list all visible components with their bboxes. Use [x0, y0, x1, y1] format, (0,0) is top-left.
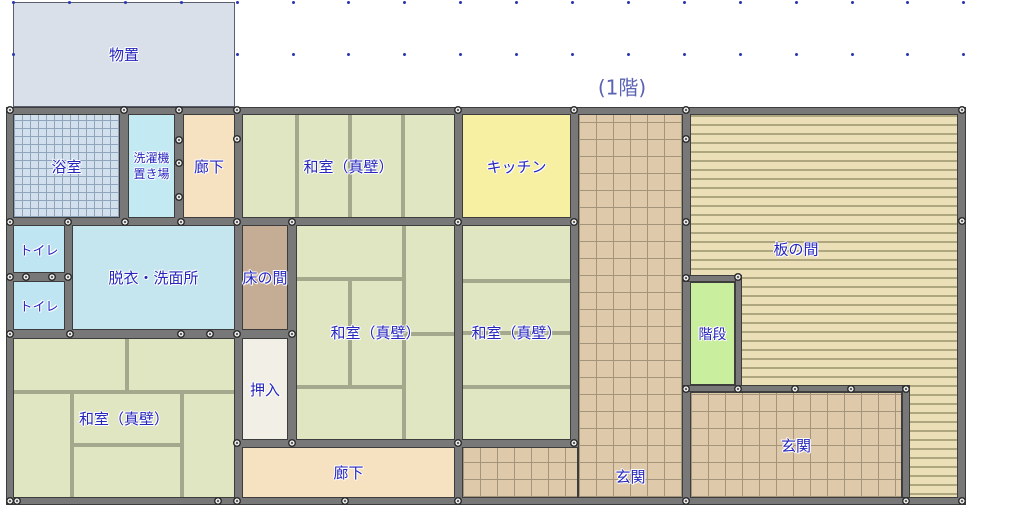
tatami-divider	[463, 279, 570, 283]
wall-joint-marker	[175, 159, 183, 167]
wall-joint-marker	[206, 330, 214, 338]
grid-dot	[515, 1, 518, 4]
wall-joint-marker	[120, 106, 128, 114]
wall-joint-marker	[958, 497, 966, 505]
floor-label: (1階)	[598, 72, 646, 101]
room-corridor-bottom[interactable]: 廊下	[242, 447, 455, 498]
grid-dot	[795, 53, 798, 56]
grid-dot	[962, 53, 965, 56]
tatami-divider	[14, 390, 234, 394]
wall-joint-marker	[682, 497, 690, 505]
grid-dot	[459, 53, 462, 56]
grid-dot	[459, 1, 462, 4]
grid-dot	[739, 1, 742, 4]
room-washitsu-middle-label: 和室（真壁）	[330, 322, 420, 343]
room-washroom[interactable]: 脱衣・洗面所	[72, 225, 235, 330]
wall-joint-marker	[958, 106, 966, 114]
wall-joint-marker	[682, 106, 690, 114]
room-toilet-upper-label: トイレ	[19, 240, 58, 259]
grid-dot	[851, 53, 854, 56]
wall-joint-marker	[791, 385, 799, 393]
wall-joint-marker	[682, 274, 690, 282]
wall-joint-marker	[6, 330, 14, 338]
wall-segment	[902, 385, 910, 498]
floor-plan-canvas: 物置 浴室 洗濯機 置き場 廊下 和室（真壁） キッチン トイレ トイレ 脱衣・…	[0, 0, 1014, 519]
wall-joint-marker	[734, 273, 742, 281]
grid-dot	[515, 53, 518, 56]
room-toilet-lower[interactable]: トイレ	[13, 281, 65, 330]
room-corridor-top-label: 廊下	[194, 156, 224, 177]
grid-dot	[347, 1, 350, 4]
room-washroom-label: 脱衣・洗面所	[108, 267, 198, 288]
room-bath-label: 浴室	[51, 156, 81, 177]
wall-joint-marker	[175, 106, 183, 114]
wall-joint-marker	[847, 385, 855, 393]
room-genkan-hall[interactable]: 玄関	[578, 114, 683, 498]
grid-dot	[683, 53, 686, 56]
wall-joint-marker	[454, 497, 462, 505]
room-storage-label: 物置	[109, 44, 139, 65]
tatami-divider	[401, 115, 405, 217]
grid-dot	[236, 53, 239, 56]
room-stairs[interactable]: 階段	[690, 282, 735, 385]
room-kitchen[interactable]: キッチン	[462, 114, 571, 218]
tatami-divider	[295, 115, 299, 217]
grid-dot	[627, 53, 630, 56]
wall-joint-marker	[22, 273, 30, 281]
room-itanoma-label: 板の間	[773, 239, 818, 260]
grid-dot	[292, 1, 295, 4]
grid-dot	[962, 1, 965, 4]
wall-joint-marker	[233, 135, 241, 143]
room-washitsu-right-label: 和室（真壁）	[471, 322, 561, 343]
wall-joint-marker	[570, 218, 578, 226]
wall-joint-marker	[6, 106, 14, 114]
wall-joint-marker	[121, 218, 129, 226]
room-genkan-entrance-label: 玄関	[781, 435, 811, 456]
tatami-divider	[74, 443, 180, 447]
grid-dot	[906, 53, 909, 56]
wall-joint-marker	[454, 106, 462, 114]
wall-joint-marker	[175, 193, 183, 201]
wall-joint-marker	[454, 439, 462, 447]
grid-dot	[851, 1, 854, 4]
room-genkan-hall-label: 玄関	[579, 466, 682, 487]
room-storage[interactable]: 物置	[13, 2, 235, 107]
grid-dot	[292, 53, 295, 56]
room-washitsu-bottom-left[interactable]: 和室（真壁）	[13, 338, 235, 498]
grid-dot	[12, 53, 15, 56]
wall-joint-marker	[734, 385, 742, 393]
room-genkan-hall-extension[interactable]	[462, 447, 578, 498]
wall-joint-marker	[233, 106, 241, 114]
wall-joint-marker	[233, 330, 241, 338]
room-corridor-bottom-label: 廊下	[333, 462, 363, 483]
wall-joint-marker	[6, 218, 14, 226]
room-tokonoma[interactable]: 床の間	[242, 225, 288, 330]
wall-joint-marker	[902, 497, 910, 505]
grid-dot	[403, 1, 406, 4]
wall-joint-marker	[13, 497, 21, 505]
wall-joint-marker	[233, 497, 241, 505]
wall-joint-marker	[233, 439, 241, 447]
grid-dot	[906, 1, 909, 4]
tatami-divider	[463, 385, 570, 389]
grid-dot	[180, 1, 183, 4]
wall-joint-marker	[177, 330, 185, 338]
wall-joint-marker	[682, 385, 690, 393]
grid-dot	[739, 53, 742, 56]
wall-joint-marker	[570, 106, 578, 114]
wall-joint-marker	[288, 218, 296, 226]
tatami-divider	[180, 394, 184, 497]
grid-dot	[124, 1, 127, 4]
wall-joint-marker	[64, 218, 72, 226]
room-kitchen-label: キッチン	[486, 156, 546, 177]
room-stairs-label: 階段	[699, 324, 727, 344]
wall-joint-marker	[682, 218, 690, 226]
wall-joint-marker	[902, 385, 910, 393]
tatami-divider	[125, 339, 129, 390]
room-corridor-top[interactable]: 廊下	[183, 114, 235, 218]
wall-joint-marker	[454, 218, 462, 226]
room-toilet-upper[interactable]: トイレ	[13, 225, 65, 273]
wall-joint-marker	[288, 439, 296, 447]
grid-dot	[571, 1, 574, 4]
room-washitsu-bottom-left-label: 和室（真壁）	[79, 408, 169, 429]
grid-dot	[571, 53, 574, 56]
tatami-divider	[297, 385, 402, 389]
room-laundry-label: 洗濯機 置き場	[133, 150, 169, 182]
wall-joint-marker	[288, 330, 296, 338]
grid-dot	[12, 1, 15, 4]
room-laundry[interactable]: 洗濯機 置き場	[128, 114, 175, 218]
wall-joint-marker	[64, 273, 72, 281]
wall-joint-marker	[48, 273, 56, 281]
wall-joint-marker	[570, 439, 578, 447]
room-bath[interactable]: 浴室	[13, 114, 120, 218]
room-oshiire-label: 押入	[250, 379, 280, 400]
wall-segment	[735, 275, 742, 393]
wall-joint-marker	[66, 330, 74, 338]
room-tokonoma-label: 床の間	[243, 267, 288, 288]
grid-dot	[68, 1, 71, 4]
room-washitsu-top-label: 和室（真壁）	[303, 156, 393, 177]
wall-joint-marker	[682, 135, 690, 143]
grid-dot	[347, 53, 350, 56]
wall-joint-marker	[177, 218, 185, 226]
grid-dot	[236, 1, 239, 4]
wall-joint-marker	[6, 273, 14, 281]
room-washitsu-right[interactable]: 和室（真壁）	[462, 225, 571, 440]
grid-dot	[627, 1, 630, 4]
grid-dot	[683, 1, 686, 4]
wall-joint-marker	[958, 217, 966, 225]
grid-dot	[795, 1, 798, 4]
wall-joint-marker	[175, 136, 183, 144]
wall-joint-marker	[341, 497, 349, 505]
room-oshiire-closet[interactable]: 押入	[242, 338, 288, 440]
wall-joint-marker	[233, 218, 241, 226]
room-genkan-entrance[interactable]: 玄関	[690, 392, 902, 498]
grid-dot	[403, 53, 406, 56]
wall-joint-marker	[214, 497, 222, 505]
room-toilet-lower-label: トイレ	[19, 296, 58, 315]
